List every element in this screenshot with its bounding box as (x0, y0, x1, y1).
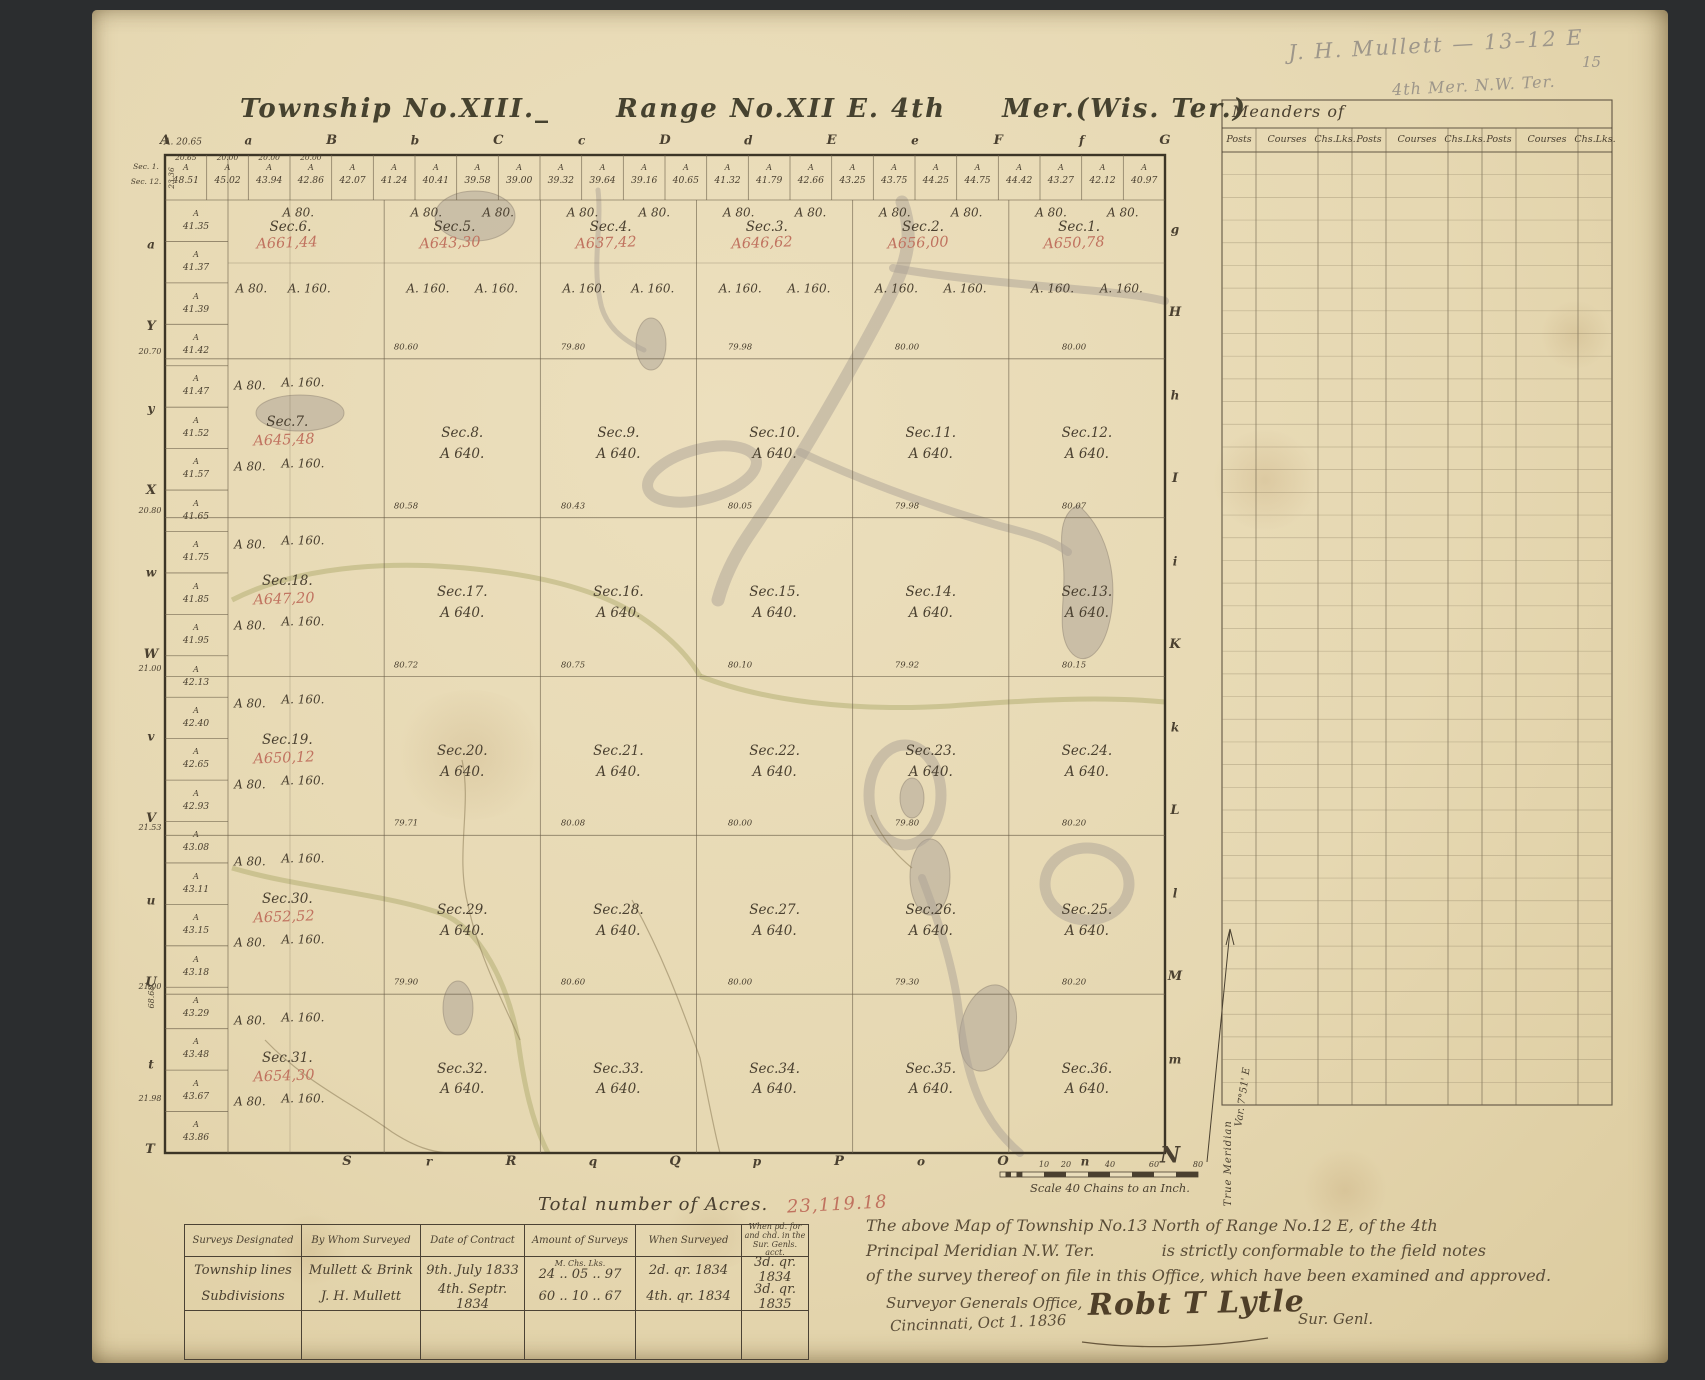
boundary-letter-bottom: r (426, 1156, 432, 1169)
section-label: Sec.6. (269, 220, 311, 234)
meanders-column-header: Courses (1397, 135, 1436, 145)
lot-acres: A. 160. (563, 283, 606, 296)
section-label: Sec.17. (437, 585, 488, 599)
chain-distance: 80.08 (561, 820, 585, 829)
compass-north-letter: N (1160, 1144, 1180, 1167)
boundary-letter-bottom: Q (669, 1155, 680, 1169)
strip-acre-letter: A (193, 707, 199, 715)
lot-acres: A 80. (1035, 206, 1067, 219)
lot-acres: A 80. (234, 380, 266, 393)
strip-acre-value: 43.25 (839, 176, 865, 186)
strip-acre-value: 41.79 (756, 176, 782, 186)
lot-acres: A 80. (234, 619, 266, 632)
boundary-letter-top: c (578, 135, 585, 148)
strip-acre-letter: A (225, 164, 231, 172)
lot-acres: A. 160. (281, 934, 324, 947)
boundary-letter-bottom: o (917, 1156, 925, 1169)
strip-acre-value: 42.86 (298, 176, 324, 186)
strip-acre-value: 43.29 (183, 1009, 209, 1019)
scale-tick-label: 20 (1061, 1161, 1071, 1169)
strip-acre-letter: A (193, 1121, 199, 1129)
scale-tick-label: 60 (1149, 1161, 1159, 1169)
strip-acre-letter: A (475, 164, 481, 172)
section-acres-total: A654,30 (253, 1068, 315, 1085)
chain-distance: 79.80 (895, 820, 919, 829)
strip-acre-value: 42.12 (1089, 176, 1115, 186)
strip-acre-letter: A (193, 872, 199, 880)
strip-acre-value: 39.00 (506, 176, 532, 186)
boundary-letter-bottom: O (997, 1155, 1008, 1169)
strip-acre-letter: A (193, 375, 199, 383)
chain-distance: 80.43 (561, 502, 585, 511)
section-acres-total: A646,62 (731, 236, 793, 253)
lot-acres: A 80. (951, 206, 983, 219)
strip-acre-value: 43.86 (183, 1133, 209, 1143)
margin-chain-value: 21.00 (139, 983, 162, 991)
strip-acre-letter: A (193, 582, 199, 590)
strip-acre-letter: A (193, 458, 199, 466)
section-acres: A 640. (909, 447, 953, 461)
section-acres-total: A643,30 (419, 236, 481, 253)
strip-sub-value: 20.00 (258, 154, 279, 162)
lot-acres: A. 160. (281, 376, 324, 389)
lot-acres: A. 160. (787, 283, 830, 296)
strip-acre-value: 42.66 (798, 176, 824, 186)
section-label: Sec.5. (433, 220, 475, 234)
margin-chain-value: 20.70 (139, 348, 162, 356)
strip-acre-letter: A (766, 164, 772, 172)
strip-acre-value: 42.13 (183, 678, 209, 688)
lot-acres: A 80. (234, 1015, 266, 1028)
strip-acre-value: 43.11 (183, 885, 209, 895)
section-acres: A 640. (1065, 765, 1109, 779)
strip-acre-value: 42.40 (183, 719, 209, 729)
lot-acres: A 80. (482, 206, 514, 219)
section-acres: A 640. (596, 606, 640, 620)
scanned-plat-photo: Township No.XIII._ Range No.XII E. 4th M… (0, 0, 1705, 1380)
strip-acre-letter: A (1058, 164, 1064, 172)
section-acres: A 640. (596, 765, 640, 779)
strip-sub-value: 20.00 (217, 154, 238, 162)
chain-distance: 80.60 (394, 343, 418, 352)
strip-acre-letter: A (891, 164, 897, 172)
strip-acre-letter: A (725, 164, 731, 172)
strip-acre-value: 41.95 (183, 636, 209, 646)
strip-acre-value: 43.48 (183, 1051, 209, 1061)
boundary-letter-left: W (144, 648, 159, 662)
strip-acre-letter: A (933, 164, 939, 172)
section-acres: A 640. (440, 447, 484, 461)
boundary-letter-right: m (1169, 1054, 1182, 1067)
boundary-letter-bottom: p (753, 1156, 761, 1169)
scale-tick-label: 10 (1039, 1161, 1049, 1169)
boundary-letter-top: E (827, 134, 837, 148)
strip-acre-letter: A (193, 955, 199, 963)
strip-acre-value: 41.47 (183, 388, 209, 398)
strip-acre-value: 45.02 (214, 176, 240, 186)
section-acres: A 640. (909, 765, 953, 779)
lot-acres: A 80. (411, 206, 443, 219)
strip-acre-letter: A (850, 164, 856, 172)
strip-acre-value: 41.42 (183, 346, 209, 356)
lot-acres: A 80. (236, 283, 268, 296)
strip-acre-value: 42.07 (339, 176, 365, 186)
lot-acres: A. 160. (281, 457, 324, 470)
section-label: Sec.4. (590, 220, 632, 234)
strip-acre-value: 40.65 (673, 176, 699, 186)
lot-acres: A. 160. (1100, 283, 1143, 296)
strip-acre-letter: A (193, 997, 199, 1005)
strip-acre-value: 41.24 (381, 176, 407, 186)
section-label: Sec.1. (1058, 220, 1100, 234)
section-label: Sec.15. (749, 585, 800, 599)
chain-distance: 80.05 (728, 502, 752, 511)
lot-acres: A 80. (234, 538, 266, 551)
section-label: Sec.35. (905, 1062, 956, 1076)
boundary-letter-left: y (148, 403, 155, 416)
section-label: Sec.16. (593, 585, 644, 599)
boundary-letter-left: u (147, 895, 156, 908)
chain-distance: 80.07 (1062, 502, 1086, 511)
strip-acre-value: 39.58 (464, 176, 490, 186)
boundary-letter-right: K (1169, 638, 1180, 652)
strip-acre-letter: A (193, 210, 199, 218)
section-label: Sec.8. (441, 426, 483, 440)
strip-acre-letter: A (1100, 164, 1106, 172)
lot-acres: A. 160. (406, 283, 449, 296)
strip-acre-letter: A (193, 417, 199, 425)
strip-acre-letter: A (193, 251, 199, 259)
boundary-letter-right: l (1173, 888, 1178, 901)
chain-distance: 80.10 (728, 661, 752, 670)
section-acres-total: A661,44 (256, 236, 318, 253)
strip-acre-value: 43.67 (183, 1092, 209, 1102)
chain-distance: 80.72 (394, 661, 418, 670)
strip-acre-letter: A (683, 164, 689, 172)
strip-acre-value: 39.64 (589, 176, 615, 186)
section-label: Sec.31. (262, 1051, 313, 1065)
chain-distance: 79.71 (394, 820, 418, 829)
meanders-column-header: Courses (1527, 135, 1566, 145)
boundary-letter-bottom: q (589, 1156, 597, 1169)
boundary-letter-bottom: R (506, 1155, 517, 1169)
lot-acres: A. 160. (281, 853, 324, 866)
strip-acre-letter: A (266, 164, 272, 172)
section-acres: A 640. (596, 447, 640, 461)
strip-acre-value: 42.93 (183, 802, 209, 812)
boundary-letter-right: H (1169, 306, 1181, 320)
chain-distance: 80.58 (394, 502, 418, 511)
lot-acres: A 80. (282, 206, 314, 219)
strip-acre-value: 44.42 (1006, 176, 1032, 186)
section-label: Sec.20. (437, 744, 488, 758)
strip-acre-value: 41.75 (183, 553, 209, 563)
section-label: Sec.30. (262, 892, 313, 906)
strip-acre-letter: A (308, 164, 314, 172)
chain-distance: 80.00 (728, 820, 752, 829)
strip-acre-value: 41.52 (183, 429, 209, 439)
lot-acres: A 80. (234, 461, 266, 474)
strip-acre-value: 41.35 (183, 222, 209, 232)
meanders-column-header: Posts (1226, 135, 1251, 145)
chain-distance: 79.92 (895, 661, 919, 670)
strip-acre-value: 44.25 (923, 176, 949, 186)
map-labels-layer: AaBbCcDdEeFfGaYyXwWvVuUtgHhIiKkLlMmSrRqQ… (0, 0, 1705, 1380)
lot-acres: A 80. (639, 206, 671, 219)
strip-acre-value: 41.57 (183, 470, 209, 480)
section-acres-total: A650,78 (1044, 236, 1106, 253)
boundary-letter-top: a (244, 135, 252, 148)
section-label: Sec.2. (902, 220, 944, 234)
lot-acres: A 80. (234, 856, 266, 869)
chain-distance: 80.20 (1062, 820, 1086, 829)
strip-acre-letter: A (1141, 164, 1147, 172)
strip-acre-value: 40.97 (1131, 176, 1157, 186)
strip-sub-value: 20.65 (175, 154, 196, 162)
section-label: Sec.32. (437, 1062, 488, 1076)
strip-acre-letter: A (600, 164, 606, 172)
section-acres-total: A650,12 (253, 750, 315, 767)
section-acres: A 640. (753, 1082, 797, 1096)
section-label: Sec.9. (597, 426, 639, 440)
lot-acres: A. 160. (475, 283, 518, 296)
meanders-column-header: Posts (1356, 135, 1381, 145)
section-acres: A 640. (440, 1082, 484, 1096)
section-acres: A 640. (1065, 924, 1109, 938)
boundary-letter-top: G (1159, 134, 1170, 148)
strip-acre-value: 43.18 (183, 968, 209, 978)
section-label: Sec.13. (1062, 585, 1113, 599)
lot-acres: A 80. (723, 206, 755, 219)
section-acres: A 640. (596, 1082, 640, 1096)
strip-acre-value: 39.32 (548, 176, 574, 186)
section-acres: A 640. (753, 765, 797, 779)
strip-acre-value: 43.75 (881, 176, 907, 186)
strip-acre-value: 41.85 (183, 595, 209, 605)
scale-caption: Scale 40 Chains to an Inch. (1030, 1182, 1190, 1194)
lot-acres: A 80. (795, 206, 827, 219)
strip-acre-value: 43.94 (256, 176, 282, 186)
boundary-letter-bottom: T (145, 1143, 155, 1157)
outside-section-ref: Sec. 1. (133, 163, 159, 171)
strip-acre-letter: A (193, 500, 199, 508)
lot-acres: A. 160. (288, 283, 331, 296)
section-acres-total: A645,48 (253, 433, 315, 450)
section-label: Sec.19. (262, 733, 313, 747)
meanders-column-header: Courses (1267, 135, 1306, 145)
boundary-letter-left: v (148, 731, 155, 744)
lot-acres: A. 160. (281, 694, 324, 707)
lot-acres: A. 160. (631, 283, 674, 296)
meanders-column-header: Posts (1486, 135, 1511, 145)
boundary-letter-top: C (493, 134, 503, 148)
chain-distance: 79.98 (728, 343, 752, 352)
boundary-letter-right: h (1171, 390, 1180, 403)
boundary-letter-right: L (1170, 804, 1179, 818)
lot-acres: A 80. (567, 206, 599, 219)
lot-acres: A. 160. (1031, 283, 1074, 296)
section-acres: A 640. (909, 1082, 953, 1096)
strip-acre-letter: A (193, 541, 199, 549)
lot-acres: A. 160. (281, 535, 324, 548)
strip-acre-letter: A (193, 334, 199, 342)
strip-acre-letter: A (808, 164, 814, 172)
chain-distance: 80.20 (1062, 979, 1086, 988)
section-label: Sec.24. (1062, 744, 1113, 758)
chain-distance: 79.30 (895, 979, 919, 988)
lot-acres: A. 160. (281, 775, 324, 788)
section-acres: A 640. (440, 924, 484, 938)
boundary-letter-right: M (1168, 970, 1182, 984)
boundary-letter-left: t (148, 1059, 154, 1072)
strip-acre-value: 42.65 (183, 761, 209, 771)
section-acres-total: A656,00 (887, 236, 949, 253)
section-label: Sec.22. (749, 744, 800, 758)
meanders-column-header: Chs.Lks. (1444, 135, 1485, 145)
scale-tick-label: 80 (1193, 1161, 1203, 1169)
boundary-letter-top: b (411, 135, 419, 148)
section-acres-total: A637,42 (575, 236, 637, 253)
lot-acres: A 80. (879, 206, 911, 219)
lot-acres: A 80. (234, 778, 266, 791)
section-acres: A 640. (753, 924, 797, 938)
section-acres: A 640. (909, 924, 953, 938)
strip-acre-value: 41.37 (183, 263, 209, 273)
chain-distance: 80.00 (1062, 343, 1086, 352)
section-label: Sec.29. (437, 903, 488, 917)
strip-acre-letter: A (193, 790, 199, 798)
chain-distance: 80.00 (895, 343, 919, 352)
strip-acre-value: 44.75 (964, 176, 990, 186)
lot-acres: A 80. (1107, 206, 1139, 219)
section-acres: A 640. (753, 447, 797, 461)
strip-acre-value: 41.32 (714, 176, 740, 186)
boundary-letter-bottom: S (342, 1155, 351, 1169)
lot-acres: A. 160. (875, 283, 918, 296)
section-label: Sec.18. (262, 574, 313, 588)
section-label: Sec.26. (905, 903, 956, 917)
chain-distance: 80.00 (728, 979, 752, 988)
chain-distance: 80.75 (561, 661, 585, 670)
section-acres: A 640. (1065, 1082, 1109, 1096)
strip-acre-value: 41.65 (183, 512, 209, 522)
section-label: Sec.14. (905, 585, 956, 599)
boundary-letter-left: X (146, 484, 156, 498)
lot-acres: A. 160. (281, 1093, 324, 1106)
section-label: Sec.27. (749, 903, 800, 917)
chain-distance: 80.15 (1062, 661, 1086, 670)
strip-acre-letter: A (558, 164, 564, 172)
strip-acre-value: 40.41 (423, 176, 449, 186)
strip-acre-letter: A (975, 164, 981, 172)
strip-acre-letter: A (391, 164, 397, 172)
meanders-column-header: Chs.Lks. (1314, 135, 1355, 145)
lot-acres: A 80. (234, 697, 266, 710)
boundary-letter-left: Y (146, 320, 155, 334)
strip-acre-letter: A (516, 164, 522, 172)
boundary-letter-right: g (1171, 224, 1179, 237)
strip-acre-value: 43.08 (183, 843, 209, 853)
margin-chain-value: 21.98 (139, 1095, 162, 1103)
margin-chain-value: 20.80 (139, 507, 162, 515)
lot-acres: A. 160. (719, 283, 762, 296)
boundary-letter-bottom: n (1081, 1156, 1090, 1169)
strip-acre-letter: A (193, 292, 199, 300)
variation-label: Var. 7°51' E (1234, 1067, 1253, 1128)
boundary-letter-top: F (994, 134, 1003, 148)
strip-acre-letter: A (1016, 164, 1022, 172)
strip-acre-letter: A (193, 831, 199, 839)
section-acres: A 640. (440, 606, 484, 620)
strip-acre-letter: A (433, 164, 439, 172)
section-label: Sec.7. (266, 415, 308, 429)
chain-distance: 79.98 (895, 502, 919, 511)
section-label: Sec.36. (1062, 1062, 1113, 1076)
strip-acre-letter: A (193, 1080, 199, 1088)
section-label: Sec.28. (593, 903, 644, 917)
strip-acre-value: 48.51 (173, 176, 199, 186)
section-label: Sec.34. (749, 1062, 800, 1076)
outside-section-ref: Sec. 12. (131, 178, 161, 186)
strip-acre-letter: A (193, 624, 199, 632)
strip-acre-letter: A (641, 164, 647, 172)
strip-acre-letter: A (193, 914, 199, 922)
strip-sub-value: 20.00 (300, 154, 321, 162)
lot-acres: A 80. (234, 937, 266, 950)
strip-acre-letter: A (193, 1038, 199, 1046)
meanders-column-header: Chs.Lks. (1574, 135, 1615, 145)
boundary-letter-top: D (659, 134, 670, 148)
section-label: Sec.12. (1062, 426, 1113, 440)
section-label: Sec.33. (593, 1062, 644, 1076)
boundary-letter-top: B (326, 134, 337, 148)
boundary-letter-left: w (146, 567, 156, 580)
boundary-letter-bottom: P (834, 1155, 844, 1169)
chain-distance: 80.60 (561, 979, 585, 988)
strip-acre-value: 43.27 (1048, 176, 1074, 186)
section-label: Sec.21. (593, 744, 644, 758)
boundary-letter-top: f (1079, 135, 1084, 148)
section-acres: A 640. (753, 606, 797, 620)
strip-acre-value: 41.39 (183, 305, 209, 315)
chain-distance: 79.90 (394, 979, 418, 988)
section-acres: A 640. (440, 765, 484, 779)
section-label: Sec.11. (905, 426, 956, 440)
strip-acre-letter: A (193, 748, 199, 756)
section-label: Sec.10. (749, 426, 800, 440)
chain-distance: 79.80 (561, 343, 585, 352)
strip-acre-value: 39.16 (631, 176, 657, 186)
boundary-letter-top: e (911, 135, 919, 148)
strip-acre-letter: A (193, 665, 199, 673)
section-acres: A 640. (909, 606, 953, 620)
strip-acre-value: 43.15 (183, 926, 209, 936)
lot-acres: A. 160. (944, 283, 987, 296)
boundary-letter-top: d (744, 135, 752, 148)
corner-measure-note: A. 20.65 (164, 138, 202, 147)
strip-acre-letter: A (350, 164, 356, 172)
lot-acres: A. 160. (281, 616, 324, 629)
true-meridian-label: True Meridian (1224, 1120, 1235, 1206)
section-acres: A 640. (1065, 606, 1109, 620)
strip-acre-letter: A (183, 164, 189, 172)
section-acres: A 640. (1065, 447, 1109, 461)
lot-acres: A. 160. (281, 1012, 324, 1025)
boundary-letter-left: a (147, 239, 155, 252)
section-acres-total: A652,52 (253, 909, 315, 926)
margin-chain-value: 21.53 (139, 824, 162, 832)
boundary-letter-right: k (1171, 722, 1179, 735)
